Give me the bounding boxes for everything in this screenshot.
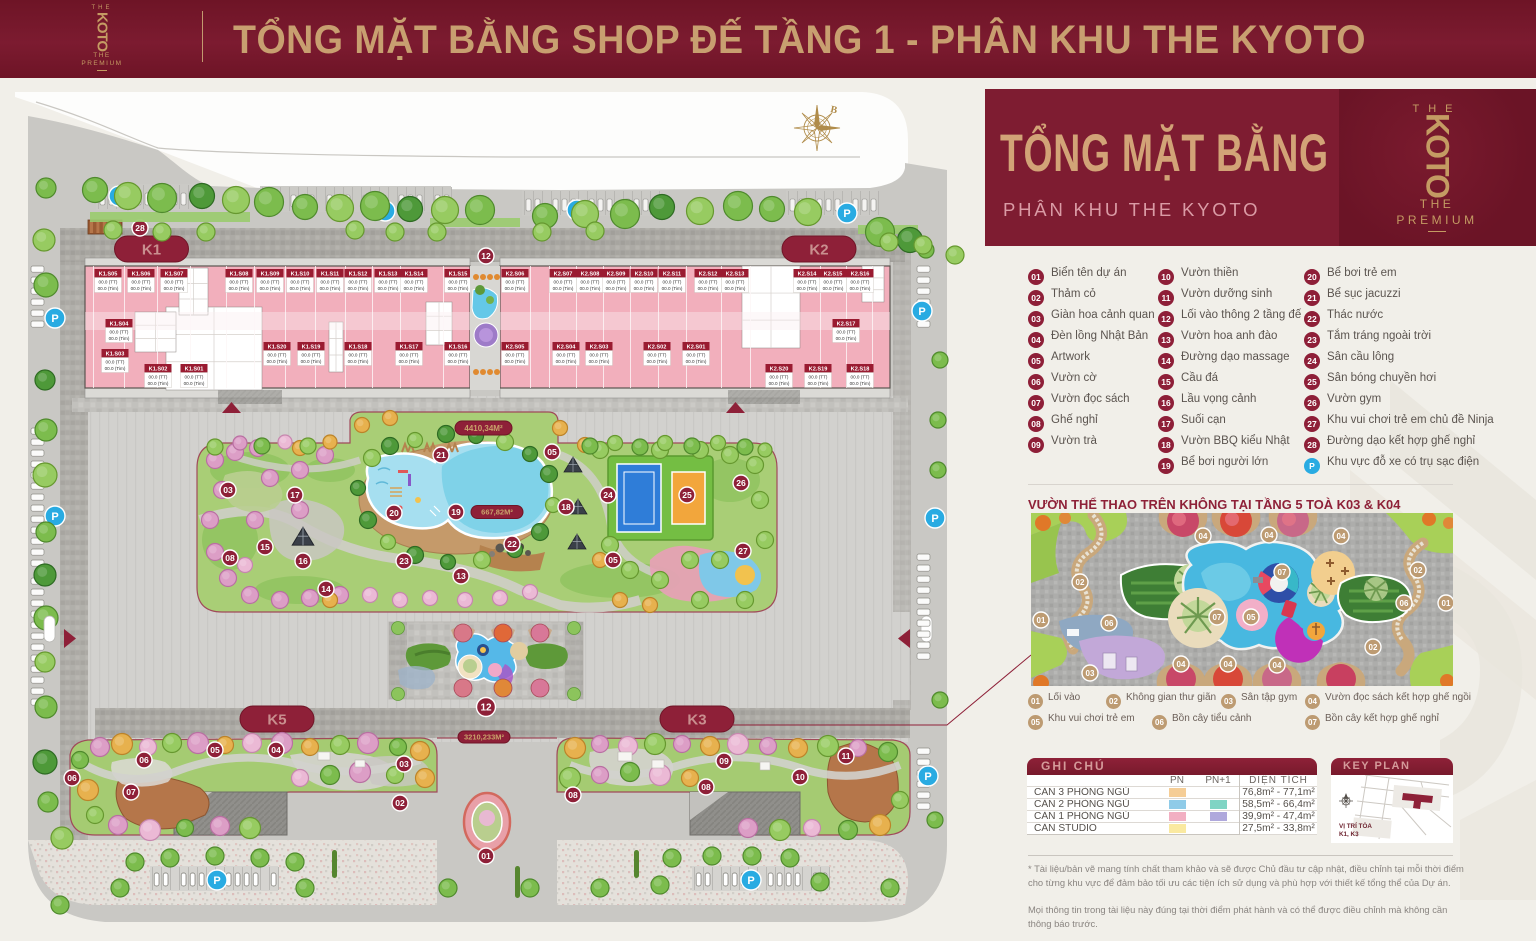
svg-text:02: 02 xyxy=(1076,578,1085,587)
svg-text:03: 03 xyxy=(1086,669,1095,678)
svg-text:K1, K3: K1, K3 xyxy=(1339,831,1359,838)
svg-text:04: 04 xyxy=(1224,660,1233,669)
svg-text:02: 02 xyxy=(1414,566,1423,575)
svg-text:02: 02 xyxy=(1369,643,1378,652)
svg-text:04: 04 xyxy=(1199,532,1208,541)
svg-text:07: 07 xyxy=(1278,568,1287,577)
svg-text:04: 04 xyxy=(1273,661,1282,670)
svg-text:07: 07 xyxy=(1213,613,1222,622)
svg-text:04: 04 xyxy=(1337,532,1346,541)
svg-text:06: 06 xyxy=(1400,599,1409,608)
svg-text:01: 01 xyxy=(1037,616,1046,625)
svg-text:04: 04 xyxy=(1177,660,1186,669)
svg-text:04: 04 xyxy=(1265,531,1274,540)
svg-text:06: 06 xyxy=(1105,619,1114,628)
svg-text:05: 05 xyxy=(1247,613,1256,622)
svg-text:01: 01 xyxy=(1442,599,1451,608)
svg-text:VỊ TRÍ TÒA: VỊ TRÍ TÒA xyxy=(1339,821,1372,830)
